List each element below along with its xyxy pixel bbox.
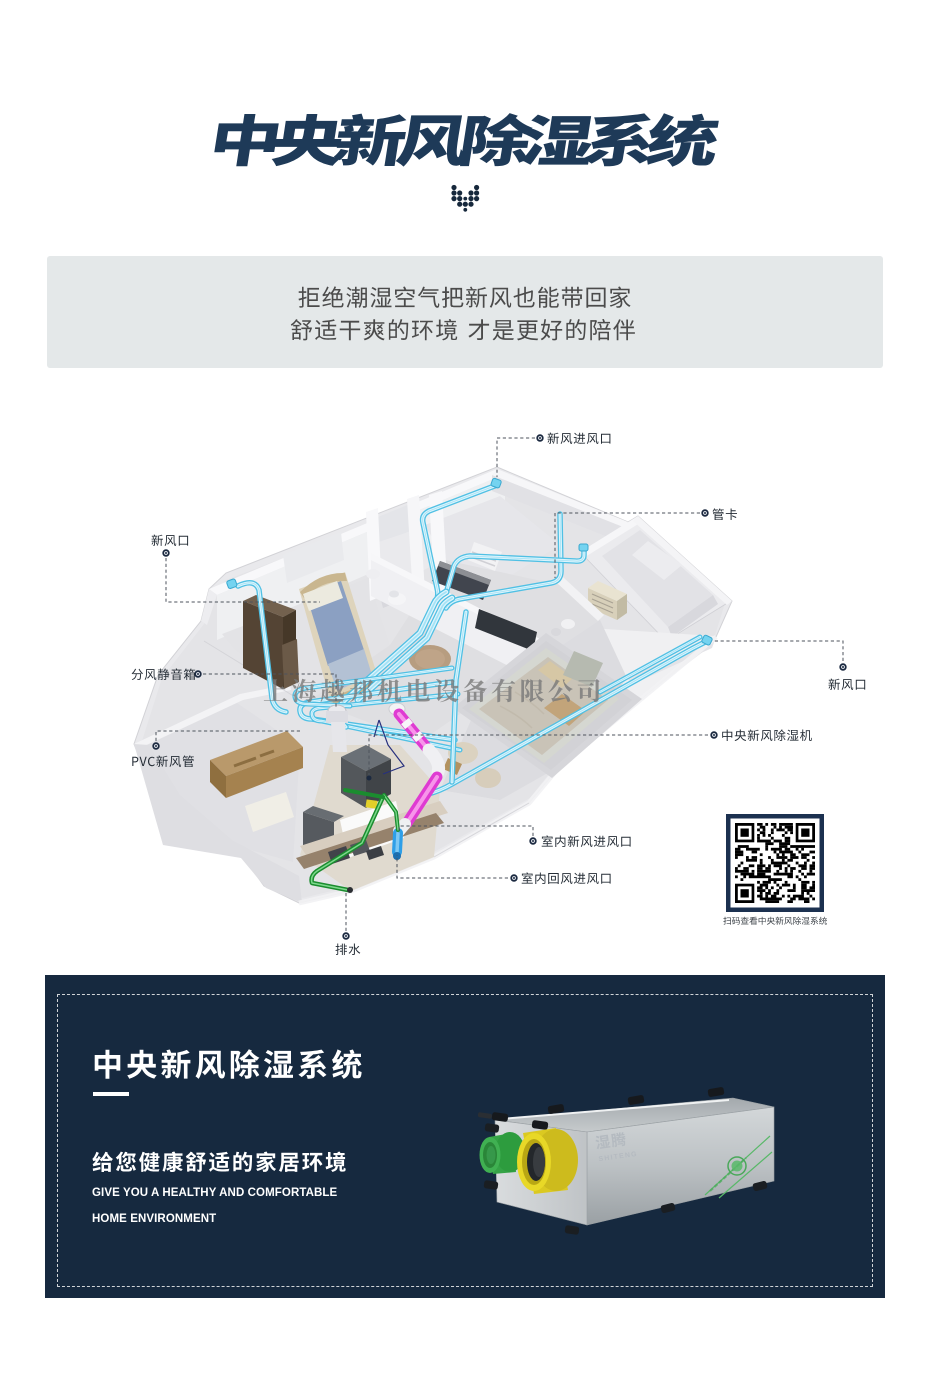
svg-text:GIVE YOU A HEALTHY AND COMFORT: GIVE YOU A HEALTHY AND COMFORTABLE — [92, 1187, 338, 1199]
svg-text:HOME ENVIRONMENT: HOME ENVIRONMENT — [92, 1213, 216, 1225]
